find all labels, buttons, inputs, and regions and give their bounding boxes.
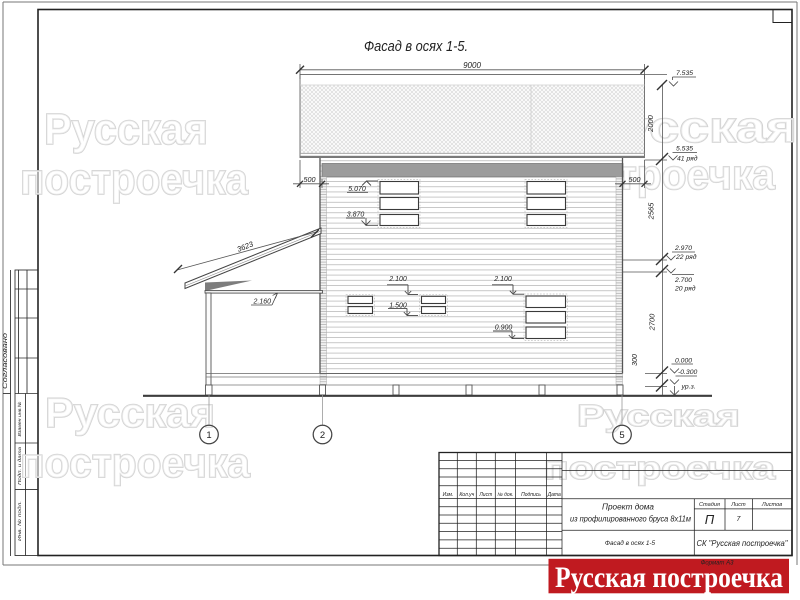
svg-text:Согласовано: Согласовано bbox=[3, 332, 9, 389]
svg-text:2.970: 2.970 bbox=[674, 245, 692, 252]
svg-text:Дата: Дата bbox=[547, 492, 561, 498]
svg-text:2: 2 bbox=[320, 430, 325, 441]
svg-text:Лист: Лист bbox=[730, 502, 746, 508]
svg-text:Стадия: Стадия bbox=[699, 502, 720, 508]
svg-text:Русская: Русская bbox=[577, 398, 740, 433]
svg-text:5.535: 5.535 bbox=[676, 146, 693, 153]
svg-text:Фасад в осях 1-5.: Фасад в осях 1-5. bbox=[364, 39, 468, 55]
svg-text:2.700: 2.700 bbox=[674, 277, 692, 284]
svg-text:500: 500 bbox=[304, 175, 316, 184]
svg-text:Кол.уч: Кол.уч bbox=[459, 492, 474, 498]
svg-text:-0.300: -0.300 bbox=[678, 369, 697, 376]
svg-text:П: П bbox=[705, 512, 715, 527]
svg-text:500: 500 bbox=[629, 175, 641, 184]
svg-text:Взамен инв.№: Взамен инв.№ bbox=[17, 402, 23, 437]
svg-text:2.100: 2.100 bbox=[493, 276, 512, 283]
svg-text:Подпись: Подпись bbox=[521, 492, 541, 498]
svg-text:0.000: 0.000 bbox=[675, 358, 692, 365]
svg-text:Проект дома: Проект дома bbox=[602, 503, 654, 512]
svg-text:5: 5 bbox=[619, 430, 624, 441]
svg-text:Русская: Русская bbox=[44, 105, 208, 154]
svg-text:3.870: 3.870 bbox=[347, 212, 365, 219]
svg-text:Инв. № подл.: Инв. № подл. bbox=[17, 501, 23, 541]
svg-text:1: 1 bbox=[206, 430, 211, 441]
svg-text:2700: 2700 bbox=[648, 313, 657, 332]
svg-text:7.535: 7.535 bbox=[676, 70, 693, 77]
svg-text:№ док.: № док. bbox=[497, 492, 513, 498]
svg-text:ур.з.: ур.з. bbox=[681, 384, 696, 391]
svg-text:построечка: построечка bbox=[20, 439, 251, 486]
svg-text:9000: 9000 bbox=[463, 61, 481, 70]
svg-text:7: 7 bbox=[737, 516, 742, 523]
svg-text:20 ряд: 20 ряд bbox=[674, 285, 696, 293]
svg-text:Листов: Листов bbox=[761, 502, 782, 508]
svg-text:41 ряд: 41 ряд bbox=[677, 155, 698, 163]
svg-text:2565: 2565 bbox=[647, 202, 656, 221]
svg-text:2.100: 2.100 bbox=[388, 276, 407, 283]
svg-text:22 ряд: 22 ряд bbox=[675, 253, 697, 261]
svg-text:2000: 2000 bbox=[646, 114, 655, 133]
svg-text:построечка: построечка bbox=[20, 155, 248, 204]
svg-text:0.900: 0.900 bbox=[495, 325, 513, 332]
svg-text:Фасад в осях 1-5: Фасад в осях 1-5 bbox=[605, 539, 656, 547]
svg-text:Изм.: Изм. bbox=[443, 492, 454, 498]
svg-text:300: 300 bbox=[632, 354, 639, 366]
svg-text:построечка: построечка bbox=[544, 450, 775, 486]
svg-text:из профилированного бруса 8х11: из профилированного бруса 8х11м bbox=[570, 515, 691, 524]
svg-text:Лист: Лист bbox=[478, 492, 492, 498]
svg-text:Русская построечка: Русская построечка bbox=[555, 561, 783, 594]
svg-text:2.160: 2.160 bbox=[253, 299, 272, 306]
svg-text:СК "Русская построечка": СК "Русская построечка" bbox=[697, 539, 789, 548]
